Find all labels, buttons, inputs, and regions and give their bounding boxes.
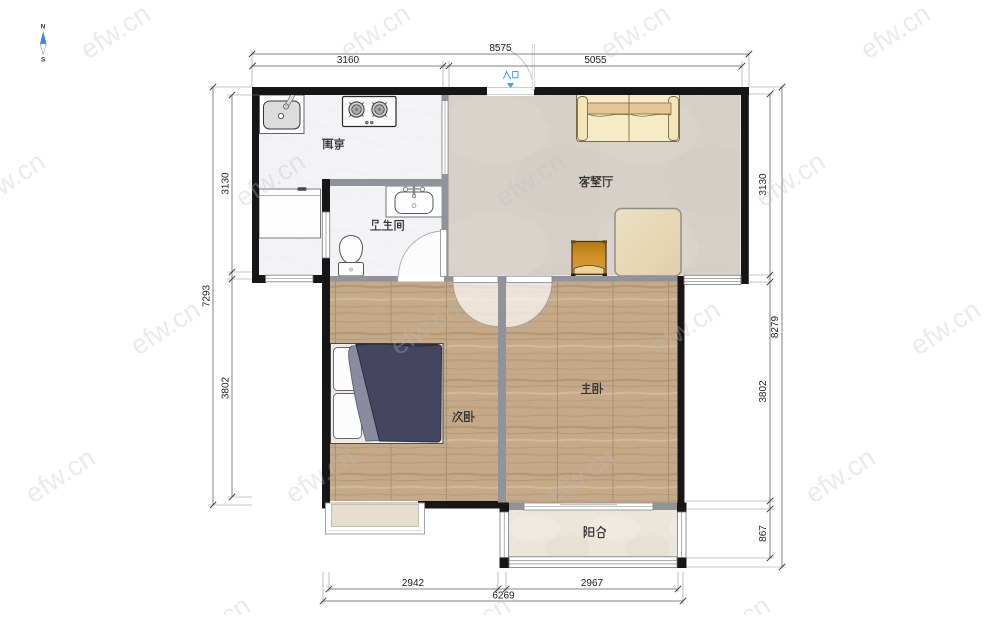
svg-text:2967: 2967 — [581, 578, 604, 589]
svg-text:5055: 5055 — [584, 55, 607, 66]
svg-text:3130: 3130 — [221, 172, 232, 195]
svg-text:3802: 3802 — [221, 376, 232, 399]
svg-text:7293: 7293 — [202, 284, 213, 307]
svg-text:3802: 3802 — [758, 380, 769, 403]
svg-text:8575: 8575 — [489, 43, 512, 54]
svg-text:S: S — [41, 57, 46, 64]
svg-text:2942: 2942 — [402, 578, 425, 589]
svg-text:867: 867 — [758, 525, 769, 542]
svg-text:8279: 8279 — [770, 315, 781, 338]
svg-text:N: N — [41, 24, 46, 31]
